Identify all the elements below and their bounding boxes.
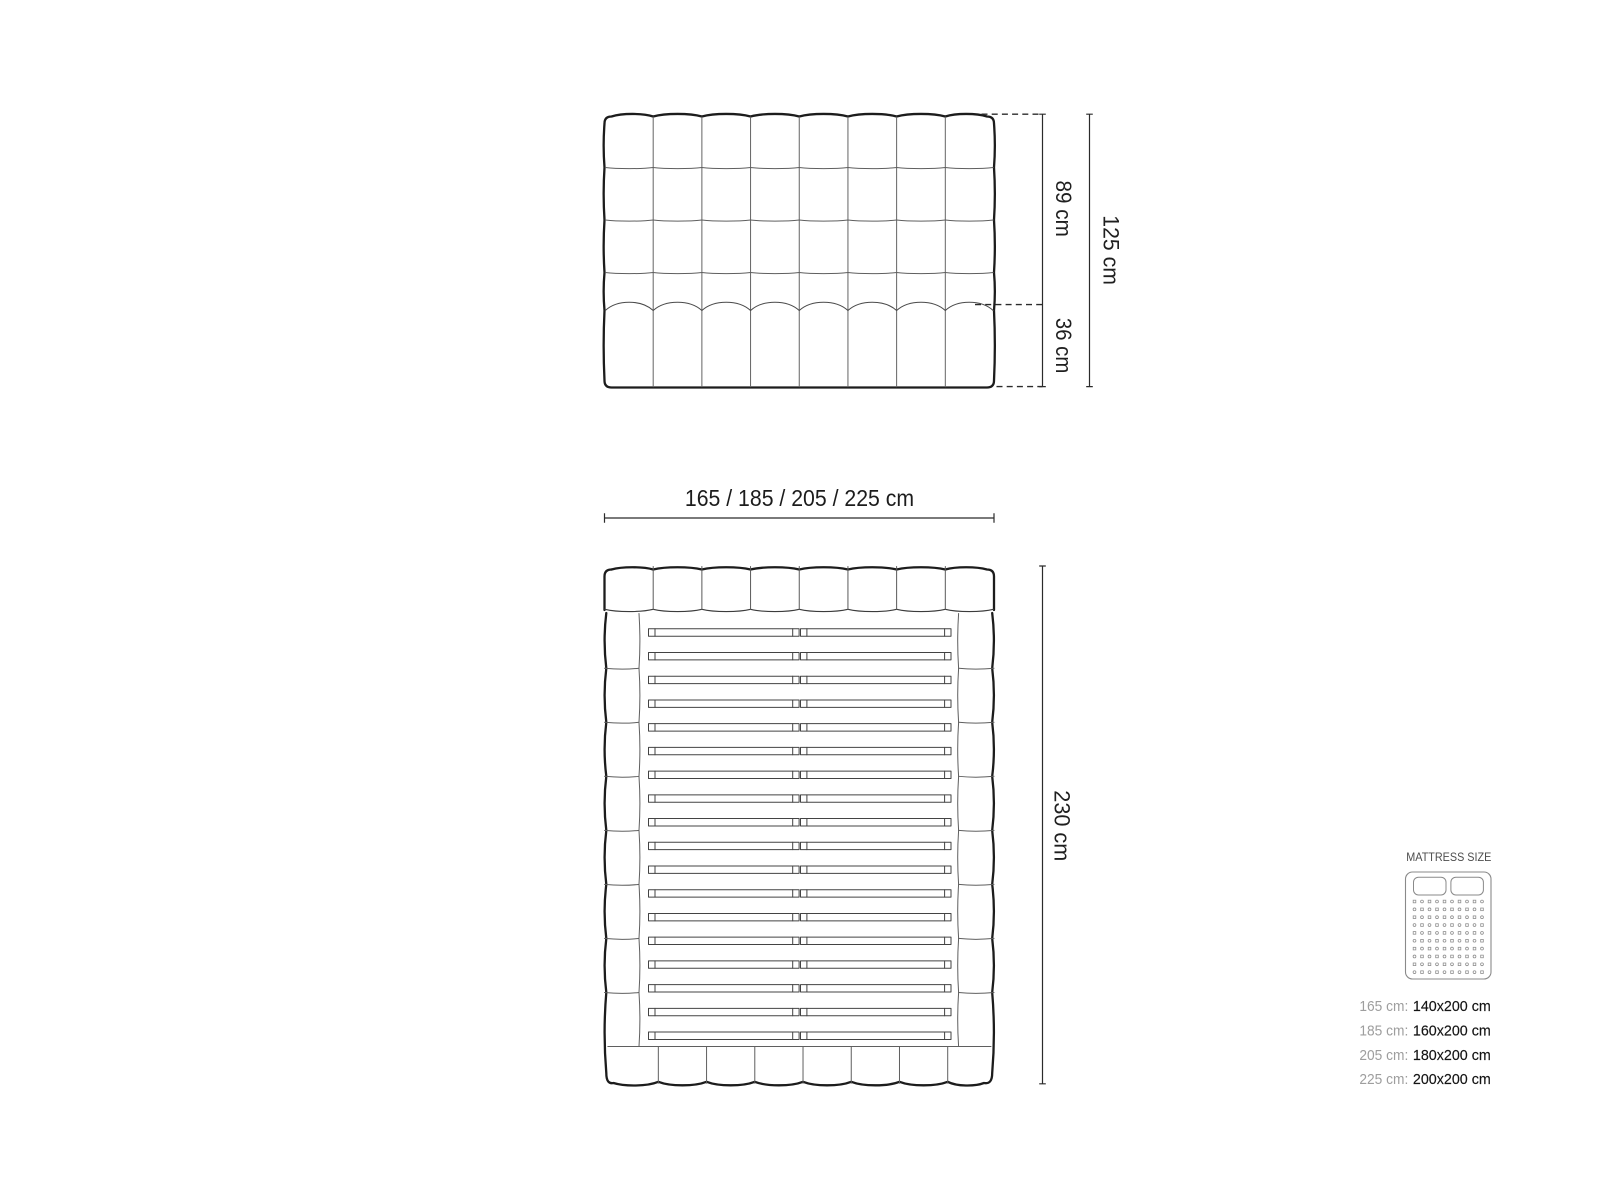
svg-text:205 cm:: 205 cm: [1359, 1047, 1408, 1064]
svg-text:MATTRESS SIZE: MATTRESS SIZE [1406, 850, 1491, 864]
svg-text:200x200 cm: 200x200 cm [1413, 1071, 1491, 1088]
svg-text:180x200 cm: 180x200 cm [1413, 1047, 1491, 1064]
svg-text:165 cm:: 165 cm: [1359, 998, 1408, 1015]
svg-text:230 cm: 230 cm [1049, 790, 1074, 861]
svg-text:89 cm: 89 cm [1051, 181, 1076, 237]
svg-text:140x200 cm: 140x200 cm [1413, 998, 1491, 1015]
svg-text:225 cm:: 225 cm: [1359, 1071, 1408, 1088]
svg-text:160x200 cm: 160x200 cm [1413, 1022, 1491, 1039]
svg-text:125 cm: 125 cm [1099, 215, 1124, 285]
svg-text:165 / 185 / 205 / 225 cm: 165 / 185 / 205 / 225 cm [685, 485, 914, 511]
svg-text:36 cm: 36 cm [1051, 318, 1076, 373]
svg-text:185 cm:: 185 cm: [1359, 1022, 1408, 1039]
